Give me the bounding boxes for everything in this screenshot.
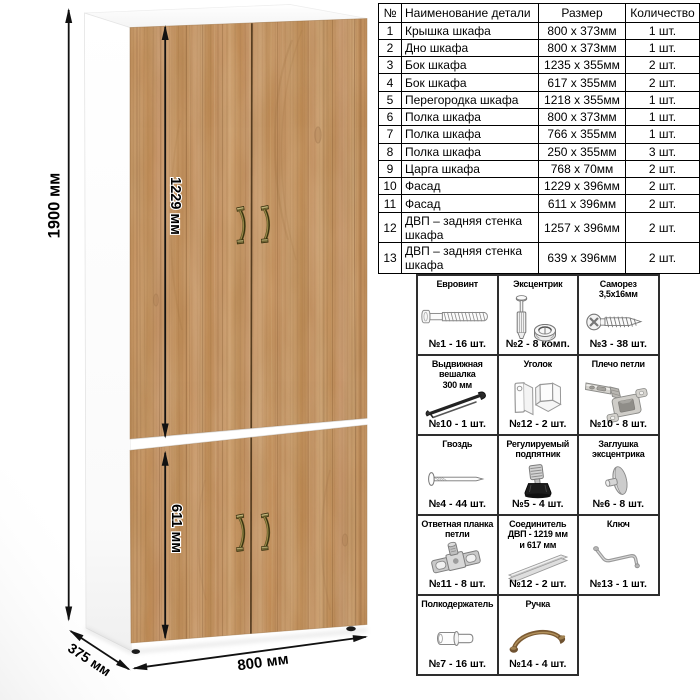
svg-text:1229 мм: 1229 мм (167, 177, 183, 235)
svg-text:1900 мм: 1900 мм (46, 173, 64, 239)
svg-text:611 мм: 611 мм (168, 504, 184, 553)
